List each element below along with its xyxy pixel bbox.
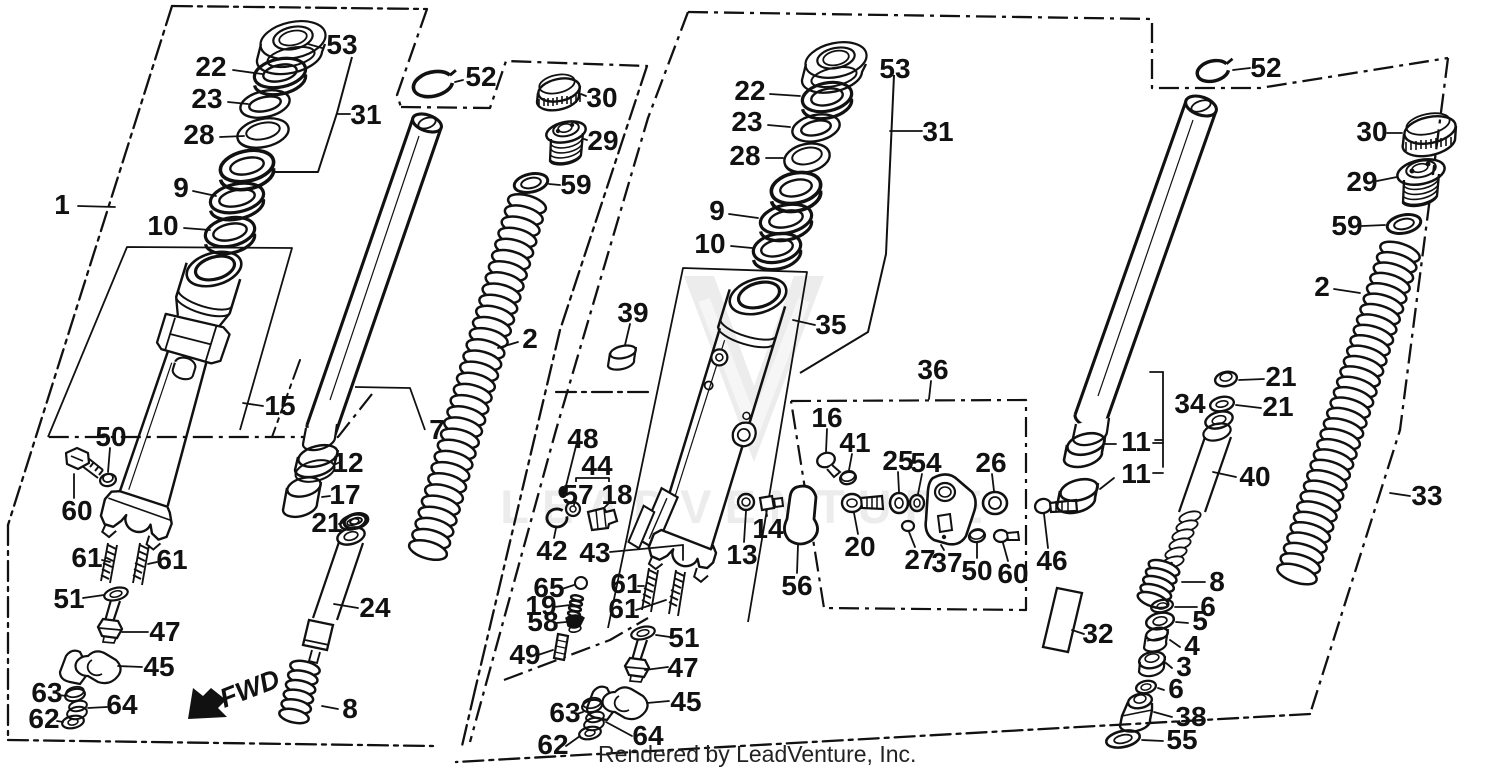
svg-text:55: 55	[1166, 724, 1197, 755]
svg-text:6: 6	[1168, 673, 1184, 704]
svg-text:45: 45	[670, 686, 701, 717]
svg-text:2: 2	[1314, 271, 1330, 302]
svg-text:50: 50	[95, 421, 126, 452]
svg-text:37: 37	[931, 547, 962, 578]
svg-text:11: 11	[1121, 426, 1151, 457]
svg-text:32: 32	[1082, 618, 1113, 649]
svg-text:31: 31	[350, 99, 381, 130]
svg-text:11: 11	[1121, 458, 1151, 489]
svg-text:62: 62	[537, 729, 568, 760]
svg-text:45: 45	[143, 651, 174, 682]
svg-text:60: 60	[997, 558, 1028, 589]
svg-text:30: 30	[586, 82, 617, 113]
svg-text:10: 10	[694, 228, 725, 259]
svg-text:2: 2	[522, 323, 538, 354]
svg-text:56: 56	[781, 570, 812, 601]
svg-text:15: 15	[264, 390, 295, 421]
svg-text:47: 47	[149, 616, 180, 647]
svg-text:63: 63	[549, 697, 580, 728]
svg-text:21: 21	[1265, 361, 1296, 392]
svg-text:24: 24	[359, 592, 391, 623]
svg-text:10: 10	[147, 210, 178, 241]
svg-text:36: 36	[917, 354, 948, 385]
svg-text:33: 33	[1411, 480, 1442, 511]
svg-text:26: 26	[975, 447, 1006, 478]
svg-text:43: 43	[579, 537, 610, 568]
svg-text:52: 52	[1250, 52, 1281, 83]
svg-text:54: 54	[910, 447, 942, 478]
svg-text:8: 8	[342, 693, 358, 724]
svg-text:44: 44	[581, 450, 613, 481]
svg-text:14: 14	[752, 513, 784, 544]
svg-text:28: 28	[729, 140, 760, 171]
svg-text:61: 61	[608, 593, 639, 624]
svg-text:22: 22	[195, 51, 226, 82]
svg-text:42: 42	[536, 535, 567, 566]
svg-text:1: 1	[54, 189, 70, 220]
svg-text:53: 53	[326, 29, 357, 60]
svg-text:53: 53	[879, 53, 910, 84]
svg-text:23: 23	[731, 106, 762, 137]
svg-text:21: 21	[311, 507, 342, 538]
svg-text:61: 61	[156, 544, 187, 575]
svg-text:9: 9	[709, 195, 725, 226]
svg-text:60: 60	[61, 495, 92, 526]
svg-text:52: 52	[465, 61, 496, 92]
svg-text:29: 29	[587, 125, 618, 156]
svg-text:7: 7	[429, 414, 445, 445]
svg-text:9: 9	[173, 172, 189, 203]
svg-text:46: 46	[1036, 545, 1067, 576]
svg-text:21: 21	[1262, 391, 1293, 422]
svg-text:58: 58	[527, 606, 558, 637]
svg-text:50: 50	[961, 555, 992, 586]
svg-text:30: 30	[1356, 116, 1387, 147]
svg-text:41: 41	[839, 427, 870, 458]
svg-text:49: 49	[509, 639, 540, 670]
svg-text:40: 40	[1239, 461, 1270, 492]
svg-text:64: 64	[106, 689, 138, 720]
svg-text:23: 23	[191, 83, 222, 114]
svg-text:62: 62	[28, 703, 59, 734]
svg-text:31: 31	[922, 116, 953, 147]
svg-text:28: 28	[183, 119, 214, 150]
svg-text:64: 64	[632, 720, 664, 751]
svg-text:47: 47	[667, 652, 698, 683]
svg-text:59: 59	[1331, 210, 1362, 241]
svg-text:51: 51	[668, 622, 699, 653]
svg-text:34: 34	[1174, 388, 1206, 419]
svg-text:22: 22	[734, 75, 765, 106]
svg-text:59: 59	[560, 169, 591, 200]
svg-text:57: 57	[562, 479, 593, 510]
svg-text:35: 35	[815, 309, 846, 340]
svg-text:20: 20	[844, 531, 875, 562]
svg-text:29: 29	[1346, 166, 1377, 197]
svg-text:17: 17	[329, 479, 360, 510]
svg-text:61: 61	[71, 542, 102, 573]
svg-text:51: 51	[53, 583, 84, 614]
svg-text:39: 39	[617, 297, 648, 328]
